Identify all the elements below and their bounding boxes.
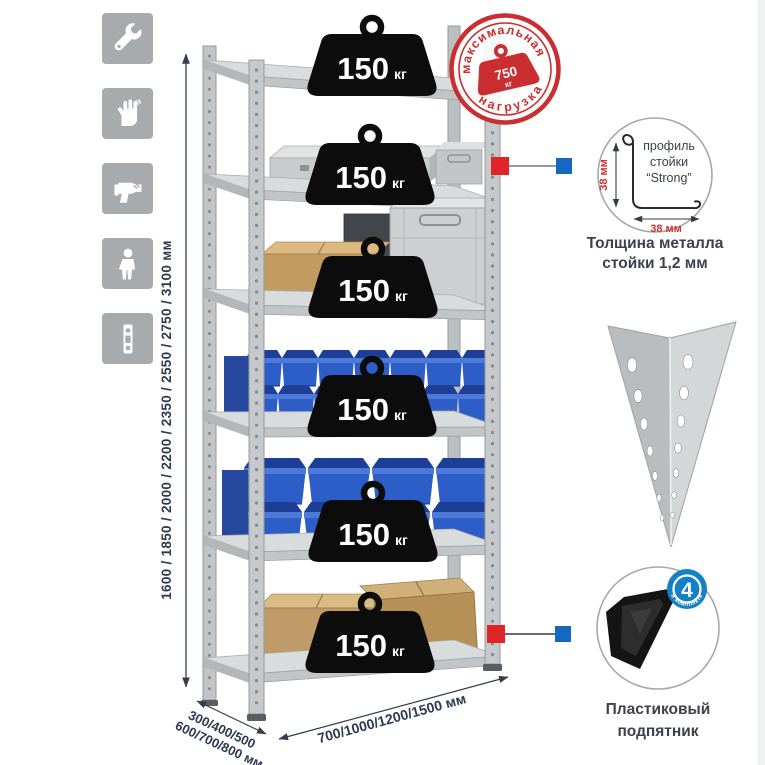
- svg-text:38 мм: 38 мм: [650, 223, 682, 235]
- profile-detail-circle: 38 мм 38 мм профиль стойки “Strong”: [598, 118, 712, 235]
- rack-foot: [247, 714, 266, 721]
- foot-caption-line1: Пластиковый: [606, 701, 711, 718]
- foot-caption-line2: подпятник: [617, 723, 698, 740]
- scene-canvas: 150кг 150кг 150кг 150кг 150кг 150кг: [0, 0, 765, 765]
- height-dimension: 1600 / 1850 / 2000 / 2200 / 2350 / 2550 …: [159, 54, 186, 687]
- profile-caption-line1: Толщина металла: [587, 235, 724, 252]
- callout-connector-top: [491, 157, 572, 175]
- svg-text:“Strong”: “Strong”: [646, 171, 691, 185]
- kit-count-badge: 4 в комплекте: [667, 569, 707, 609]
- load-badge-shelf-2: 150кг: [305, 127, 434, 205]
- infographic-shelving-unit: 150кг 150кг 150кг 150кг 150кг 150кг: [0, 0, 765, 765]
- svg-text:4: 4: [681, 579, 693, 602]
- load-badge-shelf-1: 150кг: [307, 18, 436, 96]
- connector-blue-square: [555, 626, 571, 642]
- aluminum-case-small: [436, 142, 490, 184]
- callout-connector-bottom: [487, 625, 571, 643]
- svg-text:профиль: профиль: [643, 139, 695, 153]
- rack-foot: [201, 700, 218, 706]
- rack-post-front-right: [485, 34, 500, 664]
- svg-text:700/1000/1200/1500 мм: 700/1000/1200/1500 мм: [316, 690, 468, 746]
- connector-red-square: [487, 625, 505, 643]
- profile-caption-line2: стойки 1,2 мм: [602, 255, 707, 272]
- shelving-rack: [0, 0, 502, 721]
- rack-foot: [483, 664, 502, 671]
- svg-text:1600 / 1850 / 2000 / 2200 / 23: 1600 / 1850 / 2000 / 2200 / 2350 / 2550 …: [159, 240, 174, 600]
- width-dimension: 700/1000/1200/1500 мм: [279, 677, 508, 746]
- page-edge: [757, 0, 765, 765]
- connector-blue-square: [556, 158, 572, 174]
- svg-text:стойки: стойки: [650, 155, 688, 169]
- cardboard-box-right: [0, 0, 478, 668]
- corner-post-image: [608, 313, 736, 547]
- connector-red-square: [491, 157, 509, 175]
- svg-text:38 мм: 38 мм: [598, 159, 610, 191]
